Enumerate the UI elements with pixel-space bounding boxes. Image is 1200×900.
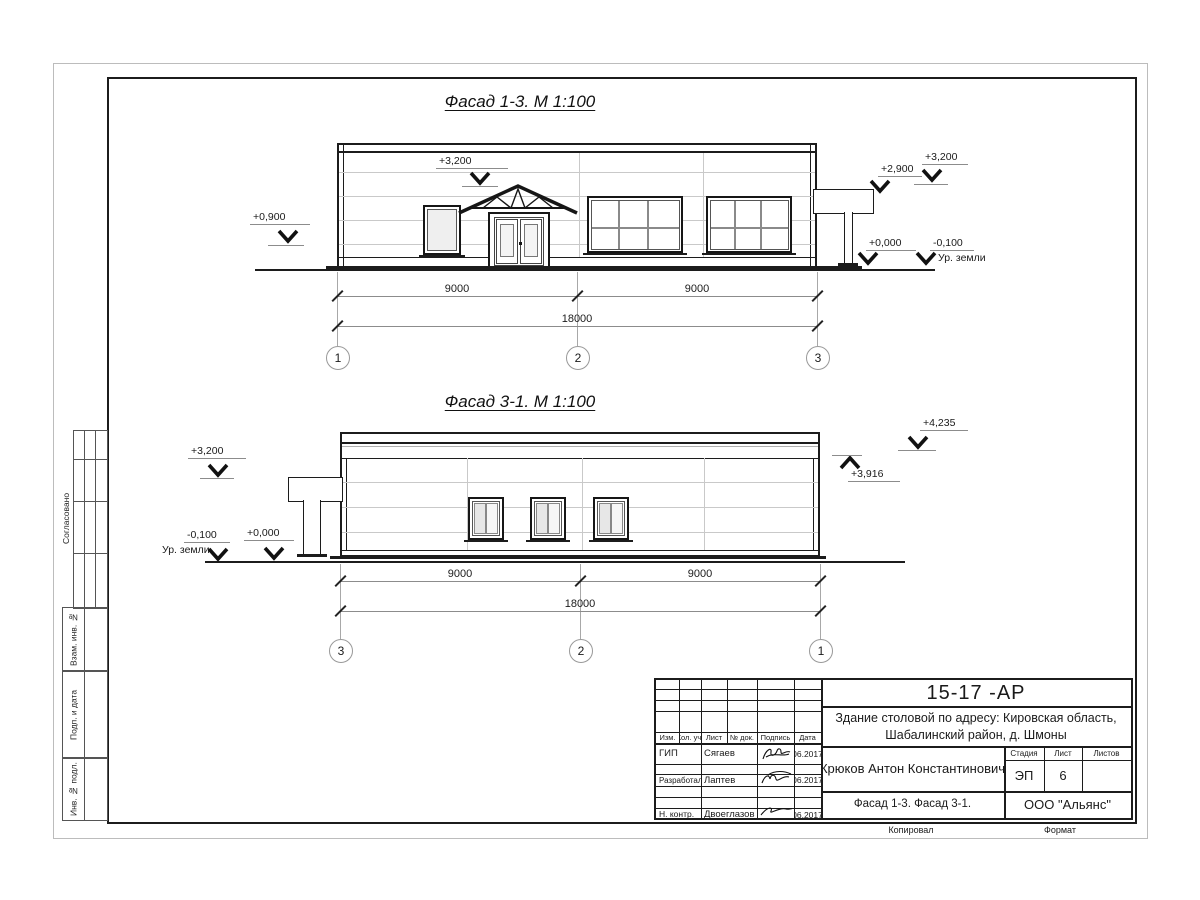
level-arrow-down-icon	[914, 251, 938, 266]
facade2-title: Фасад 3-1. М 1:100	[400, 392, 640, 412]
table-line	[701, 680, 702, 818]
table-line	[656, 786, 821, 787]
extension-line	[817, 272, 818, 346]
door-handle	[519, 242, 522, 245]
level-mark-label: +3,200	[436, 155, 508, 169]
door-glass	[524, 224, 538, 257]
facade1-building	[337, 143, 817, 268]
role-cell: ГИП	[659, 748, 701, 759]
name-cell: Сягаев	[704, 748, 756, 759]
wall-edge-line	[810, 145, 811, 266]
col-header: Изм.	[656, 732, 679, 743]
sidestamp-agreed-label: Согласовано	[59, 430, 73, 607]
divider-line	[84, 758, 85, 820]
window-sill	[419, 255, 465, 257]
sheet-header: Лист	[1044, 747, 1082, 760]
ground-line	[205, 561, 905, 563]
table-line	[656, 711, 821, 712]
sidestamp-podp-label: Подп. и дата	[63, 671, 84, 758]
dim-value: 9000	[647, 283, 747, 295]
porch-pad	[297, 554, 327, 557]
window	[706, 196, 792, 253]
signature-icon	[759, 745, 793, 764]
stage-value: ЭП	[1004, 761, 1044, 790]
sidestamp-vzam-label: Взам. инв. №	[63, 608, 84, 671]
date-cell: 06.2017	[794, 809, 821, 821]
panel-joint-line	[579, 153, 580, 257]
porch-post	[303, 500, 321, 555]
parapet-line	[342, 442, 818, 444]
door-glass	[500, 224, 514, 257]
window-sill	[589, 540, 633, 542]
door-frame	[494, 217, 544, 266]
level-mark-label: -0,100	[184, 529, 230, 543]
signature-icon	[759, 799, 793, 818]
window-grid	[591, 200, 680, 250]
sheet-title: Фасад 1-3. Фасад 3-1.	[821, 791, 1004, 818]
window	[530, 497, 566, 540]
grid-line	[74, 459, 107, 460]
table-line	[757, 680, 758, 818]
level-arrow-down-icon	[868, 179, 892, 194]
porch-post	[844, 212, 853, 264]
door-leaf	[496, 219, 518, 264]
porch-canopy	[288, 477, 343, 502]
divider-line	[84, 671, 85, 758]
format-label: Формат	[1010, 825, 1110, 835]
facade2-building	[340, 432, 820, 557]
name-cell: Двоеглазов	[704, 809, 756, 820]
window-casement	[536, 503, 548, 534]
dim-value: 18000	[530, 598, 630, 610]
project-line: Здание столовой по адресу: Кировская обл…	[826, 710, 1126, 727]
stage-header: Стадия	[1004, 747, 1044, 760]
parapet-line	[339, 151, 815, 153]
role-cell: Разработал	[659, 775, 703, 786]
window-frame	[597, 501, 625, 536]
window-casement	[548, 503, 560, 534]
window	[468, 497, 504, 540]
sidestamp-box-podp: Подп. и дата	[62, 670, 108, 759]
col-header: Кол. уч.	[679, 732, 701, 743]
parapet-line	[342, 458, 818, 459]
author-name: Крюков Антон Константинович	[821, 746, 1004, 791]
dim-value: 9000	[650, 568, 750, 580]
sidestamp-box-inv: Инв. № подл.	[62, 757, 108, 821]
doc-number: 15-17 -АР	[821, 680, 1131, 706]
window-casement	[486, 503, 498, 534]
level-arrow-down-icon	[206, 547, 230, 562]
sidestamp-inv-label: Инв. № подл.	[63, 758, 84, 820]
level-mark-label: -0,100	[930, 237, 974, 251]
ground-line	[255, 269, 935, 271]
level-mark-label: +2,900	[878, 163, 922, 177]
table-line	[656, 797, 821, 798]
window-casement	[611, 503, 623, 534]
extension-line	[820, 564, 821, 639]
window-grid	[710, 200, 789, 250]
dimension-line	[340, 611, 820, 612]
col-header: Подпись	[757, 732, 794, 743]
door-leaf	[520, 219, 542, 264]
window-casement	[474, 503, 486, 534]
wall-edge-line	[343, 145, 344, 266]
level-line	[914, 184, 948, 185]
wall-edge-line	[813, 458, 814, 550]
level-arrow-down-icon	[262, 546, 286, 561]
ground-level-label: Ур. земли	[938, 252, 986, 264]
level-mark-label: +3,200	[922, 151, 968, 165]
panel-joint-line	[703, 153, 704, 257]
siding-line	[342, 482, 818, 483]
axis-bubble: 2	[566, 346, 590, 370]
title-block: Изм. Кол. уч. Лист № док. Подпись Дата Г…	[654, 678, 1133, 820]
plinth-line	[342, 550, 818, 551]
signature-icon	[759, 768, 793, 787]
facade1-title: Фасад 1-3. М 1:100	[400, 92, 640, 112]
level-arrow-down-icon	[276, 229, 300, 244]
col-header: Лист	[701, 732, 727, 743]
level-arrow-down-icon	[206, 463, 230, 478]
axis-bubble: 3	[329, 639, 353, 663]
parapet-line	[342, 446, 818, 447]
window-sill	[526, 540, 570, 542]
name-cell: Лаптев	[704, 775, 756, 786]
drawing-sheet: Согласовано Взам. инв. № Подп. и дата Ин…	[0, 0, 1200, 900]
window-sill	[464, 540, 508, 542]
level-line	[832, 455, 862, 456]
table-line	[656, 764, 821, 765]
window-pane	[427, 209, 457, 251]
table-line	[656, 689, 821, 690]
grid-line	[95, 431, 96, 608]
grid-line	[74, 553, 107, 554]
window-frame	[472, 501, 500, 536]
date-cell: 06.2017	[794, 748, 821, 760]
window	[587, 196, 683, 253]
axis-bubble: 1	[809, 639, 833, 663]
panel-joint-line	[704, 458, 705, 550]
level-mark-label: +3,916	[848, 468, 900, 482]
divider-line	[84, 608, 85, 671]
dim-value: 18000	[527, 313, 627, 325]
org-name: ООО "Альянс"	[1004, 791, 1131, 818]
sheets-header: Листов	[1082, 747, 1131, 760]
panel-joint-line	[582, 458, 583, 550]
level-arrow-down-icon	[468, 171, 492, 186]
mullion-line	[618, 201, 620, 249]
plinth-line	[339, 257, 815, 258]
sidestamp-agreed-grid	[73, 430, 108, 609]
level-mark-label: +0,000	[244, 527, 294, 541]
extension-line	[340, 564, 341, 639]
axis-bubble: 1	[326, 346, 350, 370]
sheet-value: 6	[1044, 761, 1082, 790]
copied-label: Копировал	[861, 825, 961, 835]
date-cell: 06.2017	[794, 774, 821, 786]
level-mark-label: +0,900	[250, 211, 310, 225]
dimension-line	[337, 326, 817, 327]
role-cell: Н. контр.	[659, 809, 701, 820]
axis-bubble: 2	[569, 639, 593, 663]
level-mark-label: +3,200	[188, 445, 246, 459]
footing-band	[330, 556, 826, 559]
window	[593, 497, 629, 540]
mullion-line	[734, 201, 736, 249]
table-line	[656, 743, 821, 745]
porch-canopy	[813, 189, 874, 214]
level-line	[898, 450, 936, 451]
window-sill	[702, 253, 796, 255]
level-arrow-down-icon	[920, 168, 944, 183]
window-frame	[534, 501, 562, 536]
entrance-door	[488, 212, 550, 268]
level-mark-label: +0,000	[866, 237, 916, 251]
ground-level-label: Ур. земли	[162, 544, 210, 556]
extension-line	[337, 272, 338, 346]
table-line	[656, 700, 821, 701]
level-mark-label: +4,235	[920, 417, 968, 431]
level-line	[200, 478, 234, 479]
level-arrow-down-icon	[906, 435, 930, 450]
window-sill	[583, 253, 687, 255]
dim-value: 9000	[407, 283, 507, 295]
extension-line	[577, 272, 578, 346]
grid-line	[74, 501, 107, 502]
table-line	[821, 706, 1131, 708]
mullion-line	[760, 201, 762, 249]
grid-line	[84, 431, 85, 608]
transom-line	[711, 227, 788, 229]
transom-line	[592, 227, 679, 229]
dim-value: 9000	[410, 568, 510, 580]
axis-bubble: 3	[806, 346, 830, 370]
level-line	[268, 245, 304, 246]
project-line: Шабалинский район, д. Шмоны	[826, 727, 1126, 744]
mullion-line	[647, 201, 649, 249]
wall-edge-line	[346, 458, 347, 550]
siding-line	[342, 507, 818, 508]
window-casement	[599, 503, 611, 534]
project-name: Здание столовой по адресу: Кировская обл…	[826, 710, 1126, 744]
col-header: № док.	[727, 732, 757, 743]
window	[423, 205, 461, 255]
siding-line	[339, 172, 815, 173]
sidestamp-box-vzam: Взам. инв. №	[62, 607, 108, 672]
level-arrow-down-icon	[856, 251, 880, 266]
siding-line	[342, 532, 818, 533]
level-line	[462, 186, 498, 187]
col-header: Дата	[794, 732, 821, 743]
